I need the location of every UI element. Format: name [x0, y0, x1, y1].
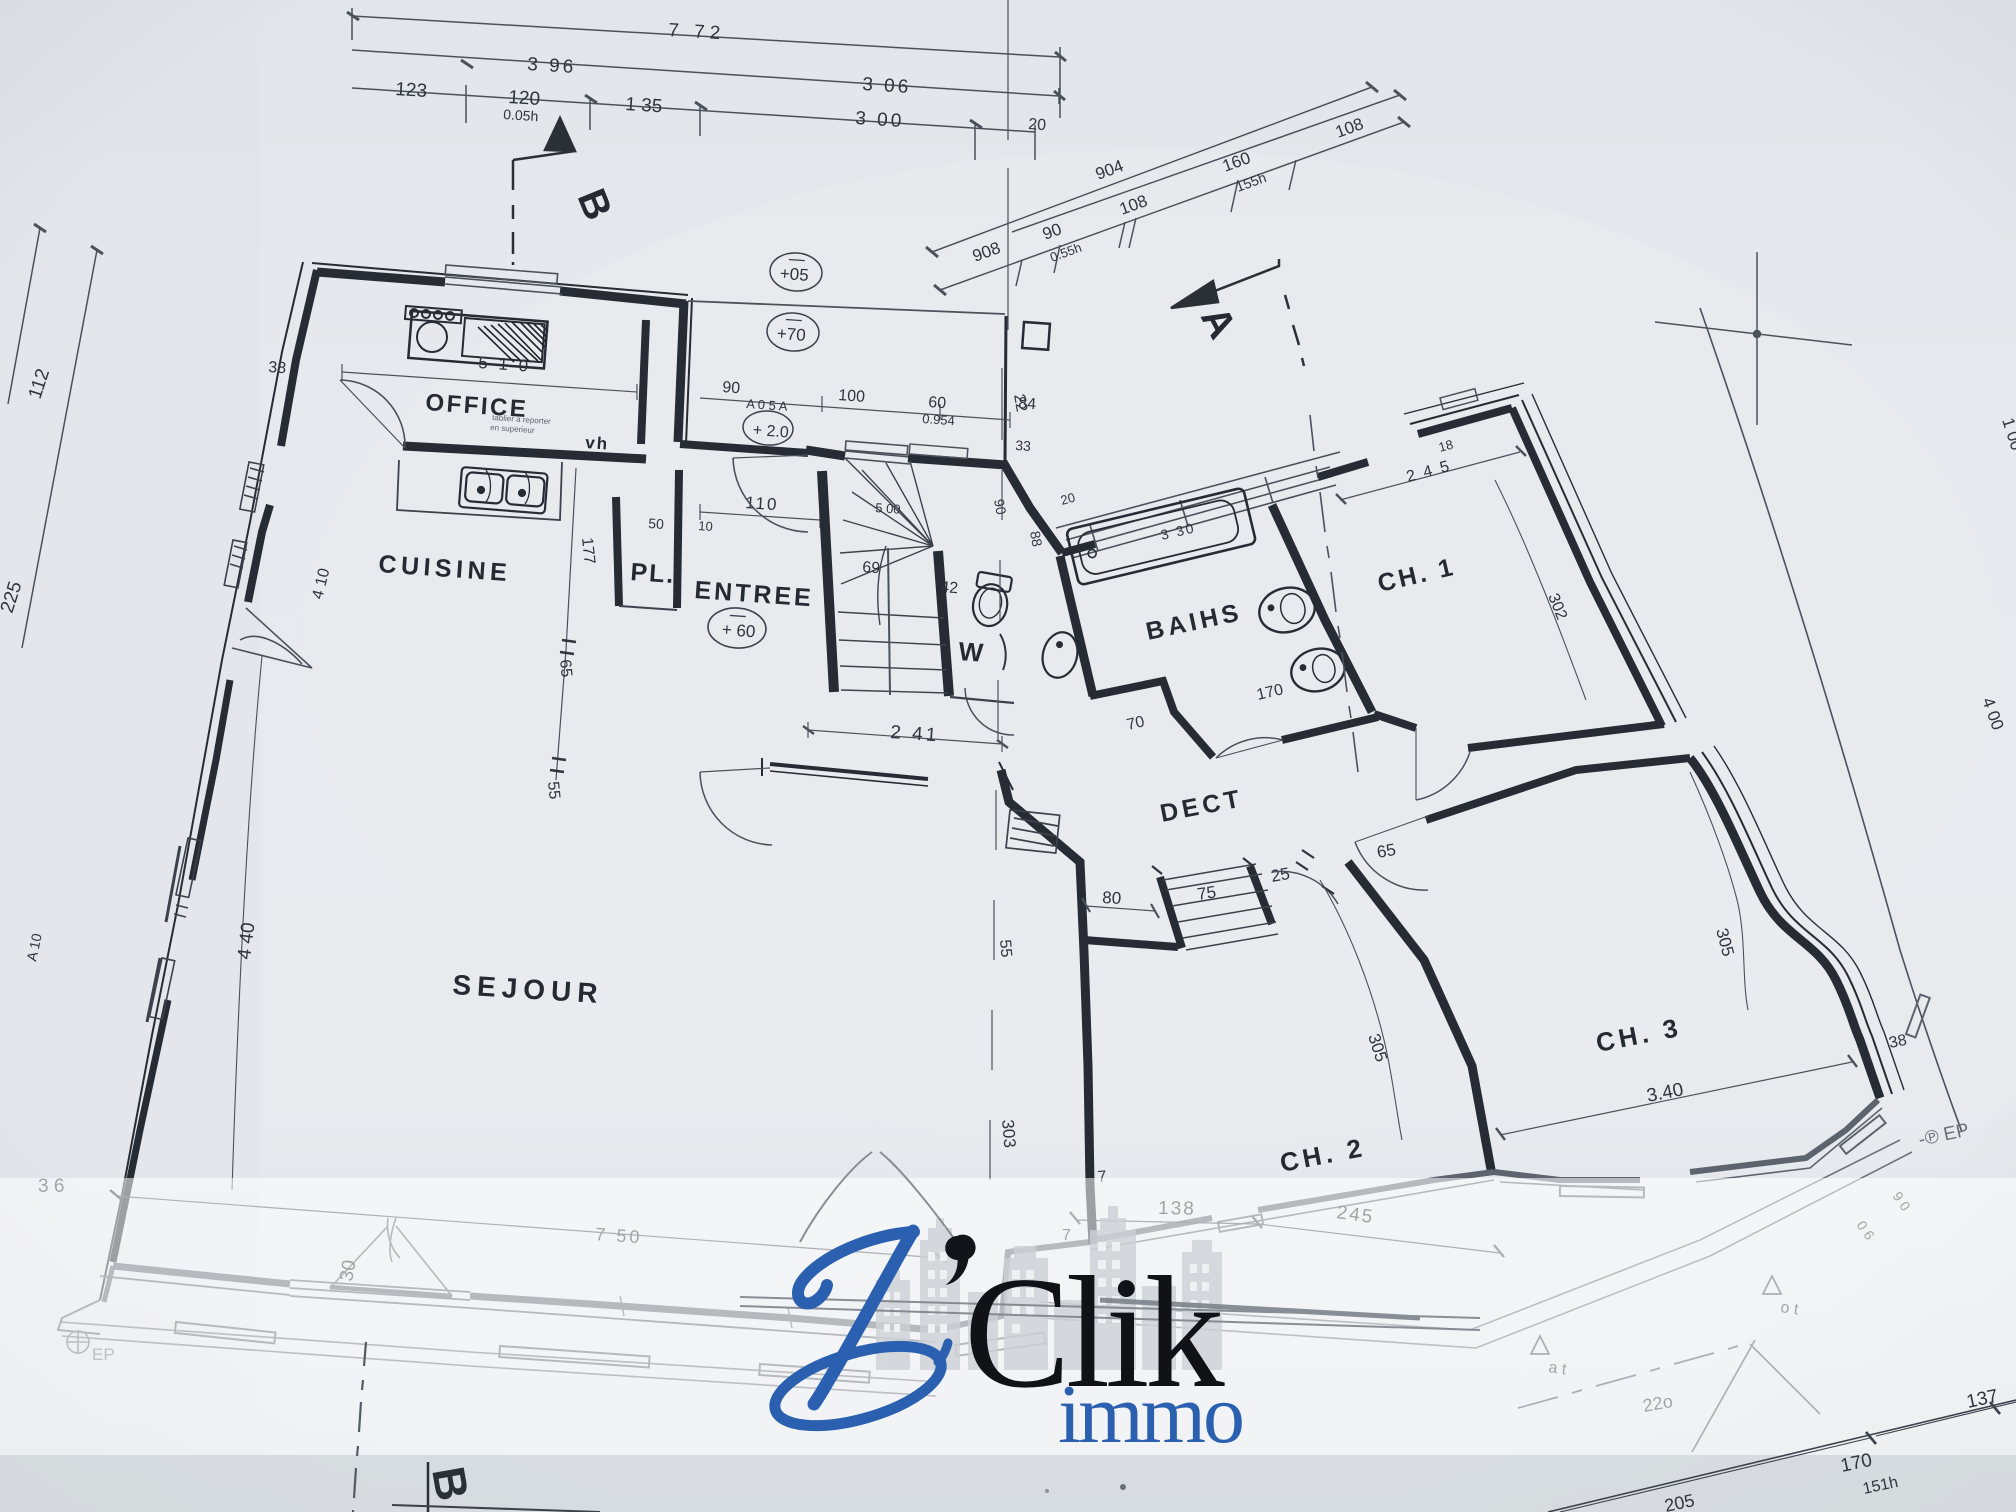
- svg-text:0.954: 0.954: [922, 411, 956, 428]
- svg-text:3 00: 3 00: [855, 108, 905, 132]
- svg-text:7 72: 7 72: [668, 20, 726, 44]
- svg-text:5 1 0: 5 1 0: [478, 353, 532, 376]
- svg-text:+ 60: + 60: [721, 620, 756, 641]
- svg-text:4 40: 4 40: [234, 921, 259, 960]
- svg-text:38: 38: [1888, 1032, 1909, 1052]
- svg-text:+ 2.0: + 2.0: [752, 422, 789, 441]
- svg-text:177: 177: [578, 537, 598, 565]
- svg-text:2 41: 2 41: [890, 722, 940, 746]
- svg-text:33: 33: [1015, 437, 1032, 454]
- svg-text:20: 20: [1028, 116, 1047, 134]
- svg-text:69: 69: [862, 559, 881, 577]
- svg-text:3 96: 3 96: [527, 54, 577, 78]
- svg-text:123: 123: [395, 79, 428, 102]
- svg-text:65: 65: [1375, 840, 1397, 862]
- svg-text:5 00: 5 00: [875, 500, 901, 517]
- svg-text:3 06: 3 06: [862, 74, 912, 98]
- svg-text:60: 60: [928, 394, 947, 412]
- svg-text:PL.: PL.: [630, 558, 677, 589]
- svg-text:55: 55: [544, 781, 563, 801]
- svg-text:303: 303: [998, 1119, 1019, 1149]
- svg-text:10: 10: [698, 518, 713, 534]
- svg-text:50: 50: [648, 515, 665, 532]
- svg-text:immo: immo: [1058, 1368, 1242, 1461]
- svg-text:42: 42: [940, 579, 959, 597]
- svg-text:25: 25: [1269, 864, 1291, 886]
- svg-text:0.05h: 0.05h: [503, 106, 539, 124]
- svg-text:vh: vh: [585, 433, 610, 454]
- svg-text:55: 55: [996, 939, 1014, 958]
- svg-text:1 35: 1 35: [625, 94, 663, 117]
- svg-text:100: 100: [838, 387, 866, 406]
- svg-text:65: 65: [556, 659, 575, 679]
- svg-text:75: 75: [1196, 883, 1217, 904]
- svg-text:90: 90: [991, 498, 1009, 516]
- svg-text:80: 80: [1102, 888, 1122, 908]
- svg-text:W: W: [958, 636, 985, 668]
- svg-text:90: 90: [722, 379, 741, 397]
- svg-text:+05: +05: [779, 264, 809, 285]
- svg-text:+70: +70: [776, 324, 806, 345]
- svg-text:38: 38: [268, 359, 287, 377]
- svg-text:A 0 5 A: A 0 5 A: [746, 396, 788, 414]
- svg-text:84: 84: [1018, 395, 1037, 413]
